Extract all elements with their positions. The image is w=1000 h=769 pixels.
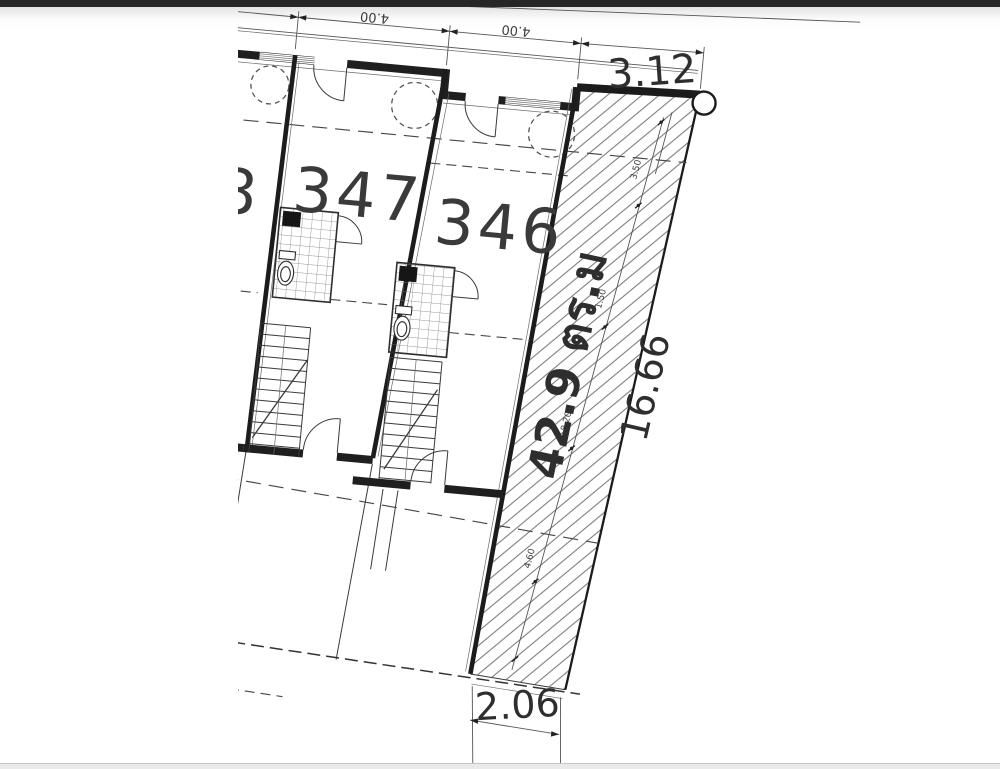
unit-label-347: 347 [290, 153, 427, 238]
porch-tree-icons [247, 64, 579, 159]
window-top-bar [0, 0, 1000, 7]
bathroom-346 [389, 262, 481, 359]
upper-reference-line [385, 7, 860, 47]
yard-partitions [371, 489, 398, 572]
sink-icon [398, 266, 417, 283]
bay-width-dim-1: 4.00 [360, 8, 390, 26]
window-bottom-bar [0, 763, 1000, 769]
dimension-3-12: 3.12 [606, 46, 698, 98]
drawing-canvas: 4.00 4.00 [238, 7, 1000, 763]
unit-label-348: 348 [238, 146, 264, 231]
corner-survey-marker [692, 91, 717, 116]
dimension-2-06: 2.06 [474, 681, 561, 729]
bay-width-dim-2: 4.00 [501, 21, 531, 39]
stairs-346 [379, 357, 442, 483]
floor-plan-svg: 4.00 4.00 [238, 7, 1000, 763]
unit-label-346: 346 [431, 185, 568, 270]
